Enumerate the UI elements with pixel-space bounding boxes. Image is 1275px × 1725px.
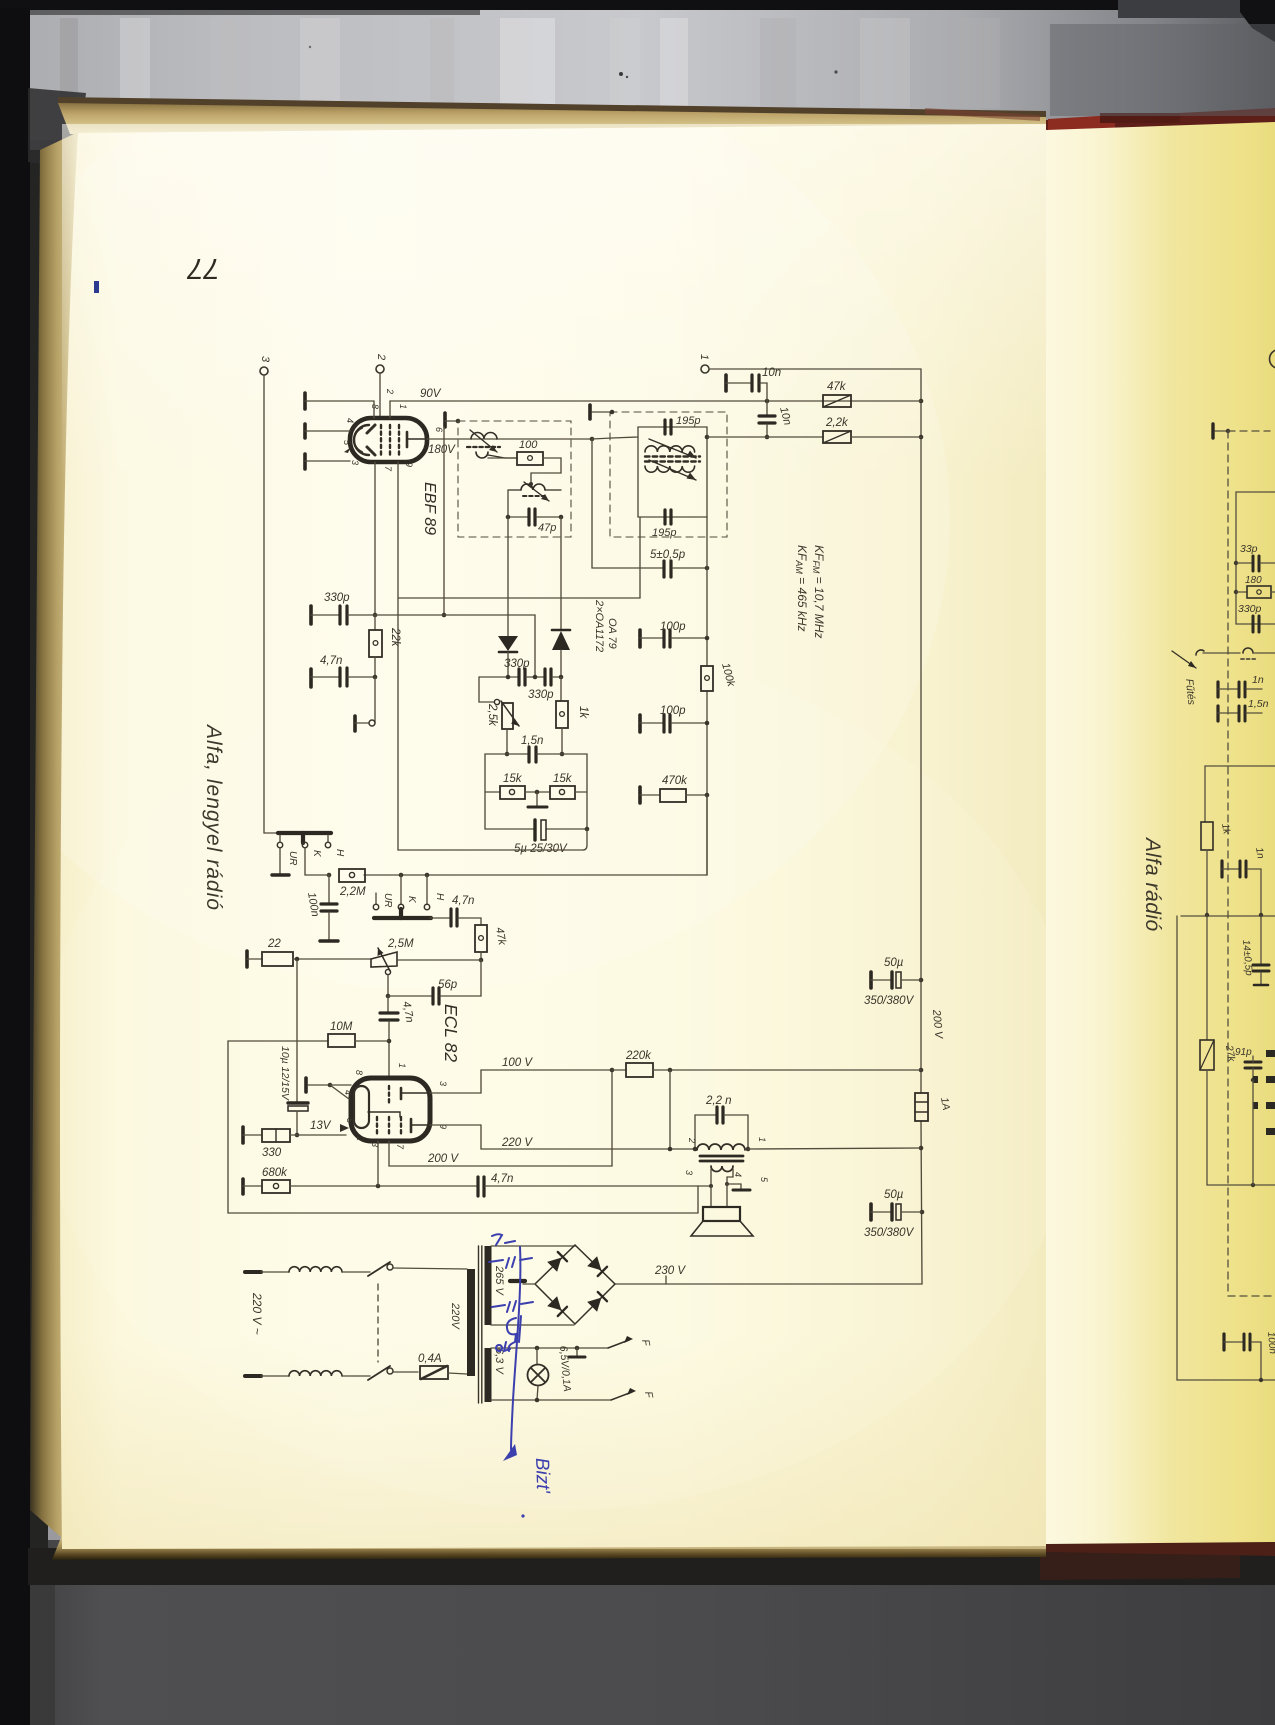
svg-text:1: 1 — [698, 354, 710, 360]
svg-text:2,2 n: 2,2 n — [705, 1095, 732, 1107]
svg-text:195p: 195p — [652, 527, 676, 539]
svg-text:2,2M: 2,2M — [339, 886, 366, 898]
svg-text:1k: 1k — [577, 706, 589, 719]
svg-text:4: 4 — [345, 418, 355, 423]
svg-text:10µ 12/15V: 10µ 12/15V — [279, 1046, 291, 1101]
svg-text:4,7n: 4,7n — [452, 895, 474, 907]
svg-text:3: 3 — [259, 356, 271, 363]
svg-text:Fűtés: Fűtés — [1183, 678, 1197, 706]
svg-text:2: 2 — [375, 353, 387, 360]
svg-text:22: 22 — [267, 938, 281, 950]
svg-text:330p: 330p — [504, 658, 530, 670]
svg-text:220 V: 220 V — [501, 1137, 533, 1149]
svg-text:15k: 15k — [553, 773, 573, 785]
svg-text:220V: 220V — [449, 1302, 461, 1330]
svg-text:47k: 47k — [827, 381, 847, 393]
svg-text:100 V: 100 V — [502, 1057, 533, 1069]
svg-text:50µ: 50µ — [884, 1189, 904, 1201]
svg-text:3: 3 — [350, 460, 360, 465]
svg-text:2,2k: 2,2k — [825, 417, 849, 429]
svg-text:1: 1 — [757, 1137, 767, 1142]
svg-text:180V: 180V — [428, 444, 456, 456]
svg-text:1: 1 — [398, 404, 408, 409]
svg-text:1n: 1n — [1252, 674, 1264, 686]
svg-text:47p: 47p — [538, 522, 556, 534]
svg-text:13V: 13V — [310, 1120, 332, 1132]
svg-text:Bizt': Bizt' — [531, 1457, 553, 1494]
svg-text:5±0,5p: 5±0,5p — [650, 549, 686, 561]
svg-text:10n: 10n — [762, 367, 781, 379]
svg-text:350/380V: 350/380V — [864, 1227, 915, 1239]
svg-text:15k: 15k — [503, 773, 523, 785]
svg-text:100: 100 — [519, 439, 538, 451]
svg-text:H: H — [434, 893, 445, 901]
svg-text:350/380V: 350/380V — [864, 995, 915, 1007]
svg-text:195p: 195p — [676, 415, 700, 427]
svg-text:2,5k: 2,5k — [486, 703, 498, 727]
svg-text:4: 4 — [733, 1172, 743, 1177]
svg-text:100p: 100p — [660, 621, 686, 633]
svg-text:180: 180 — [1245, 575, 1262, 586]
svg-text:EBF 89: EBF 89 — [421, 482, 438, 535]
svg-text:0,4A: 0,4A — [418, 1353, 442, 1365]
svg-text:2: 2 — [355, 1135, 365, 1141]
svg-text:8: 8 — [370, 404, 380, 409]
svg-text:KFFM = 10,7 MHz: KFFM = 10,7 MHz — [811, 545, 826, 638]
svg-text:1,5n: 1,5n — [521, 735, 543, 747]
svg-text:330p: 330p — [324, 592, 350, 604]
svg-text:Alfa, lengyel rádió: Alfa, lengyel rádió — [202, 723, 225, 911]
svg-text:77: 77 — [186, 252, 220, 284]
svg-text:50µ: 50µ — [884, 957, 904, 969]
svg-text:220k: 220k — [625, 1050, 652, 1062]
svg-text:100p: 100p — [660, 705, 686, 717]
svg-text:3: 3 — [438, 1081, 448, 1086]
svg-text:Alfa rádió: Alfa rádió — [1141, 836, 1164, 932]
svg-text:330: 330 — [262, 1147, 282, 1159]
svg-text:220 V ~: 220 V ~ — [250, 1292, 264, 1335]
svg-text:265 V: 265 V — [493, 1265, 505, 1296]
svg-text:56p: 56p — [438, 979, 458, 991]
svg-text:330p: 330p — [528, 689, 554, 701]
svg-text:2: 2 — [385, 388, 395, 394]
svg-text:8: 8 — [354, 1070, 364, 1075]
svg-text:OA 79: OA 79 — [606, 618, 618, 649]
svg-text:4: 4 — [343, 1090, 353, 1095]
svg-text:1,5n: 1,5n — [1248, 698, 1269, 710]
svg-text:1: 1 — [397, 1063, 407, 1068]
svg-text:4,7n: 4,7n — [491, 1173, 513, 1185]
svg-text:9: 9 — [404, 462, 414, 467]
svg-text:2×OA1172: 2×OA1172 — [593, 599, 605, 652]
svg-text:2: 2 — [687, 1137, 697, 1143]
svg-text:680k: 680k — [262, 1167, 288, 1179]
svg-text:ECL 82: ECL 82 — [441, 1004, 461, 1062]
svg-text:91p: 91p — [1235, 1047, 1252, 1058]
svg-text:230 V: 230 V — [654, 1265, 686, 1277]
svg-text:90V: 90V — [420, 388, 442, 400]
svg-text:1A: 1A — [938, 1096, 952, 1111]
svg-text:22k: 22k — [389, 627, 401, 648]
svg-text:4,7n: 4,7n — [320, 655, 342, 667]
svg-text:UR: UR — [382, 893, 393, 907]
svg-text:470k: 470k — [662, 775, 688, 787]
svg-text:330p: 330p — [1238, 603, 1262, 615]
svg-text:3: 3 — [684, 1170, 694, 1175]
svg-text:5µ 25/30V: 5µ 25/30V — [514, 843, 568, 855]
svg-text:KFAM = 465 kHz: KFAM = 465 kHz — [794, 545, 809, 632]
svg-text:H: H — [334, 849, 345, 857]
svg-text:200 V: 200 V — [427, 1153, 459, 1165]
svg-text:10M: 10M — [330, 1021, 353, 1033]
svg-text:2,5M: 2,5M — [387, 938, 414, 950]
svg-text:UR: UR — [287, 851, 298, 865]
svg-text:6: 6 — [434, 427, 444, 432]
svg-text:33p: 33p — [1240, 543, 1258, 555]
